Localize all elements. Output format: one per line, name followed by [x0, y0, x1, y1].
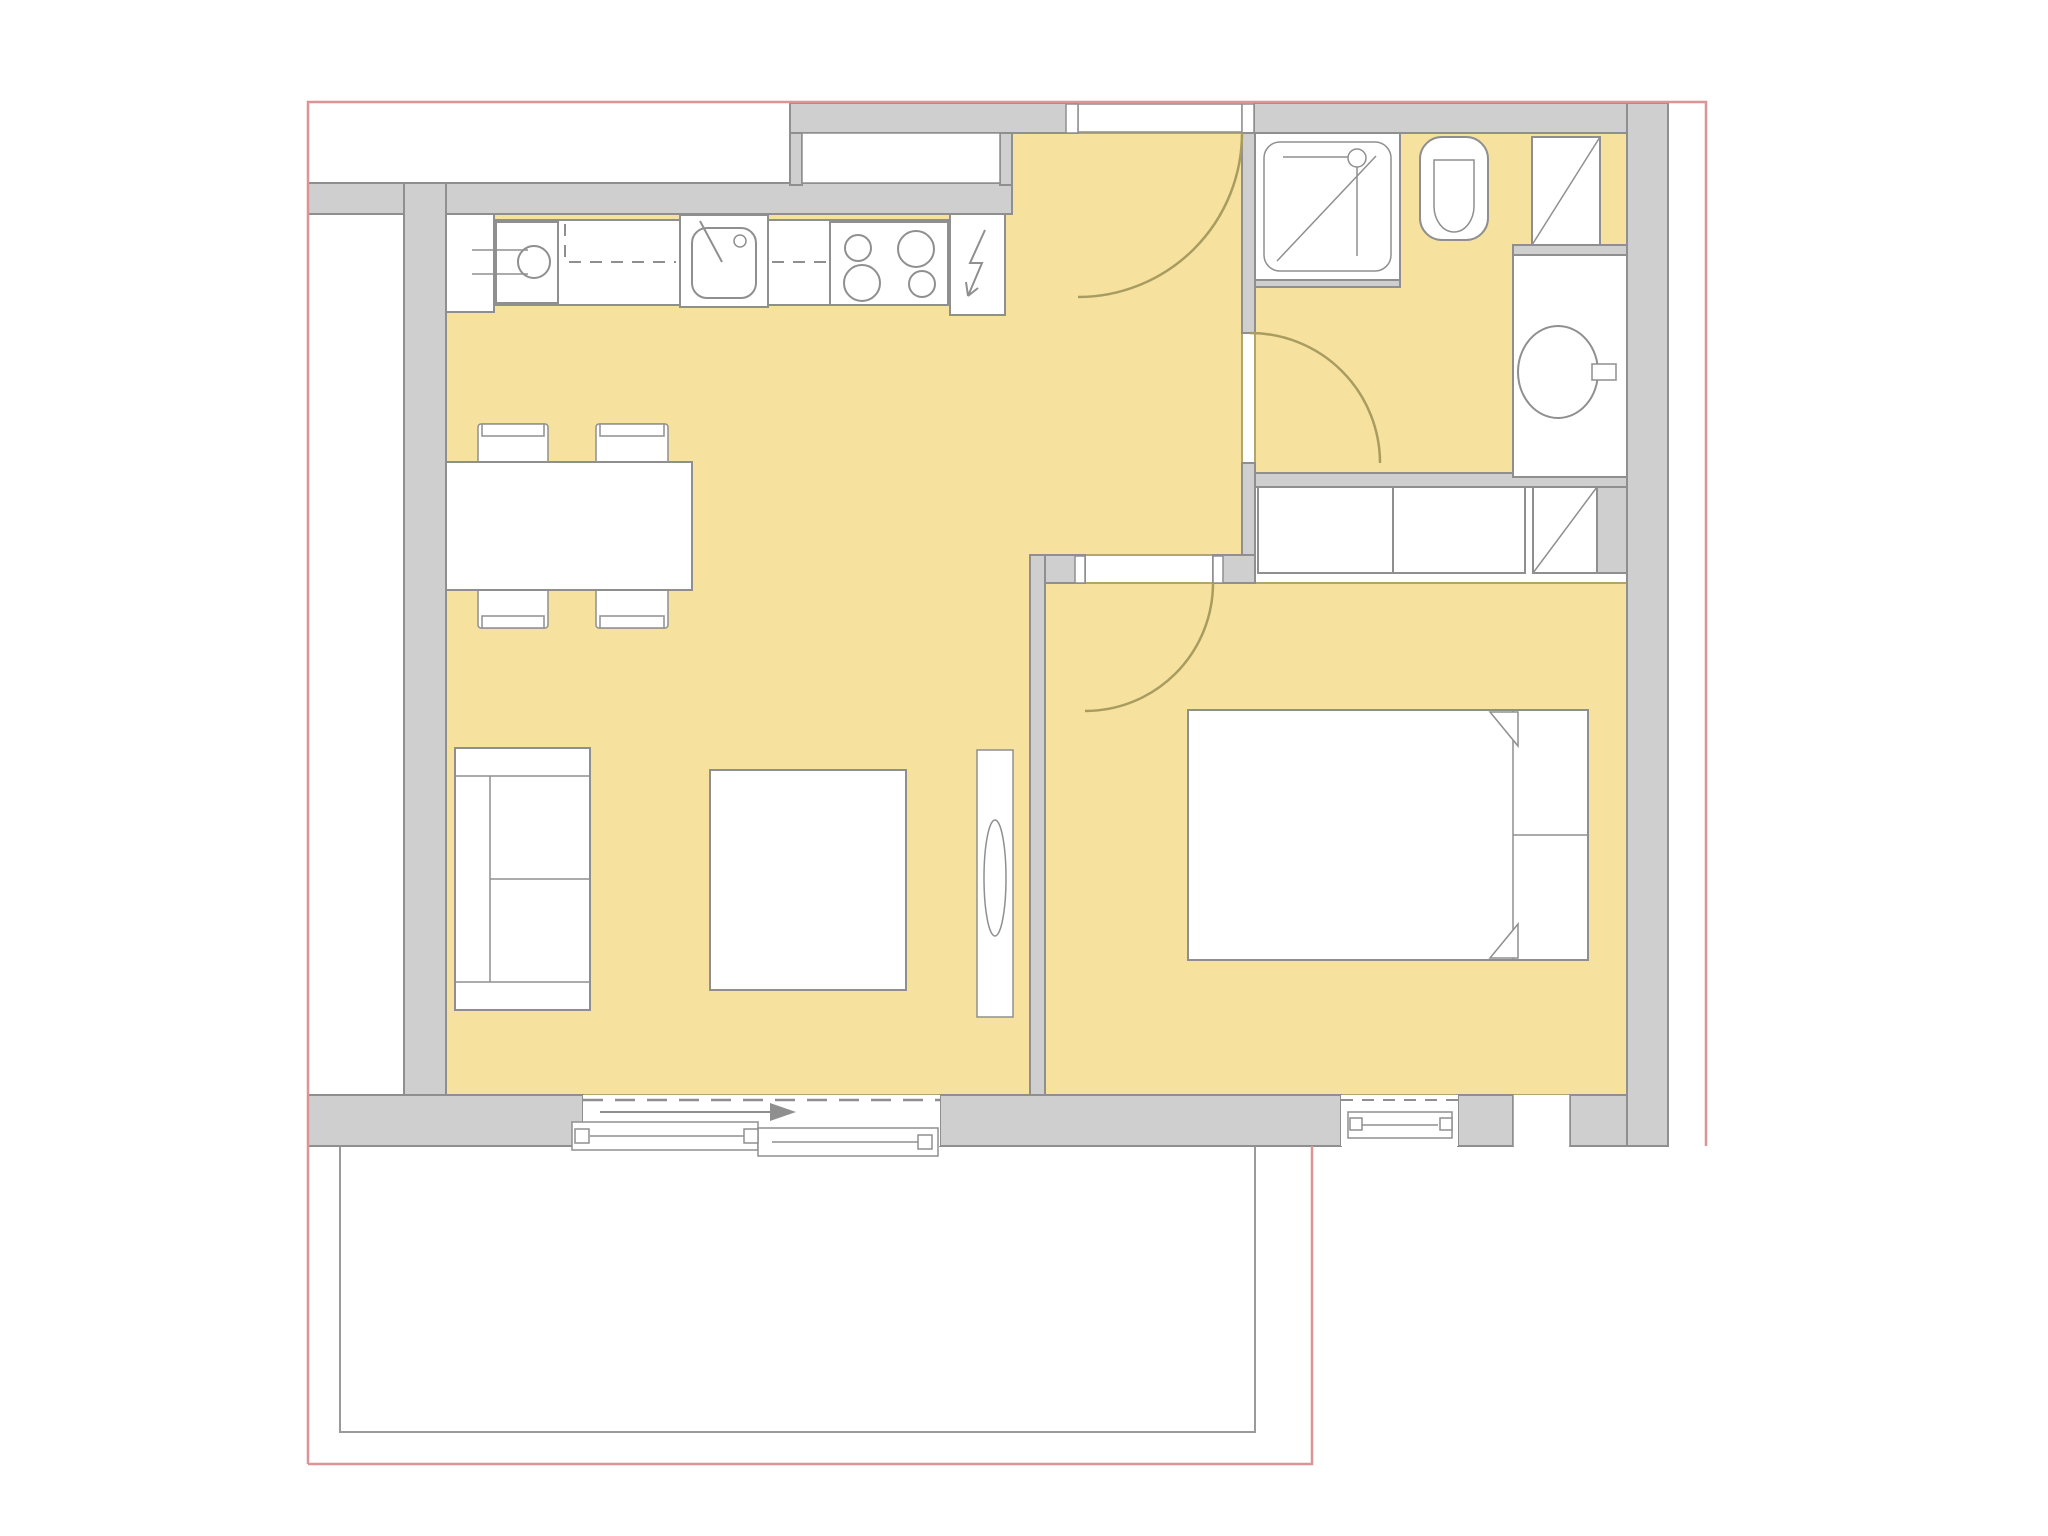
washing-machine	[496, 222, 558, 303]
electrical-panel	[950, 214, 1005, 315]
duct-row-wall	[1597, 487, 1627, 573]
entrance-jamb-left	[1066, 104, 1078, 133]
bedroom-door-jamb-right	[1213, 556, 1223, 583]
wardrobe	[1258, 487, 1393, 573]
tv-lowboard	[977, 750, 1013, 1017]
wardrobe	[1393, 487, 1525, 573]
toilet-bowl	[1434, 160, 1474, 232]
corner-window-opening	[1513, 1095, 1570, 1146]
dining-chair-backrest	[482, 424, 544, 436]
dining-chair-backrest	[600, 616, 664, 628]
top-wall-entry-right	[1254, 103, 1668, 133]
hall-bath-divider-upper	[1242, 133, 1255, 333]
panel-handle	[575, 1129, 589, 1143]
top-wall-entry-left	[790, 103, 1078, 133]
right-wall	[1627, 103, 1668, 1146]
panel-handle	[744, 1129, 758, 1143]
washbasin-tap-icon	[1592, 364, 1616, 380]
entrance-opening	[1078, 104, 1242, 132]
kitchen-tall-unit	[446, 214, 494, 312]
bottom-wall-left	[308, 1095, 583, 1146]
dining-table	[446, 462, 692, 590]
panel-handle	[918, 1135, 932, 1149]
kitchen	[446, 214, 1005, 315]
entrance-jamb-right	[1242, 104, 1254, 133]
coffee-table	[710, 770, 906, 990]
window-handle	[1350, 1118, 1362, 1130]
bedroom-door-jamb-left	[1075, 556, 1085, 583]
partition-living-bedroom	[1030, 555, 1045, 1095]
floorplan-canvas	[0, 0, 2048, 1536]
bottom-wall-middle	[940, 1095, 1341, 1146]
balcony-outline	[340, 1146, 1255, 1432]
window-handle	[1440, 1118, 1452, 1130]
boundary-bottom	[308, 1146, 1312, 1464]
washbasin-wall-bar	[1513, 245, 1627, 255]
entry-niche	[802, 133, 1000, 183]
dining-chair-backrest	[600, 424, 664, 436]
step-wall-right	[1000, 133, 1012, 185]
bottom-wall-right-a	[1458, 1095, 1513, 1146]
step-wall-left	[790, 133, 802, 185]
dining-chair-backrest	[482, 616, 544, 628]
left-wall	[404, 183, 446, 1146]
floorplan-page	[0, 0, 2048, 1536]
